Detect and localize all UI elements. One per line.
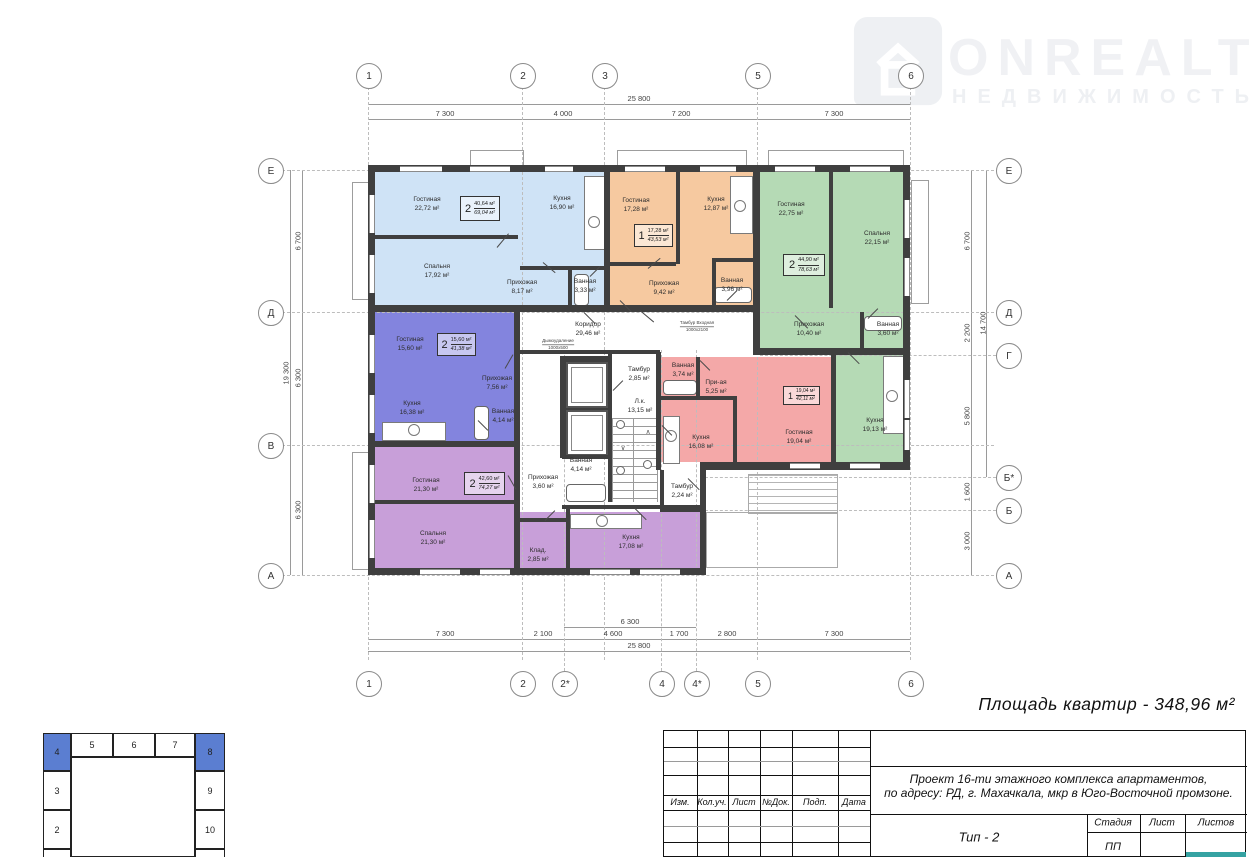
sink [596,515,608,527]
dim-right-seg3: 5 800 [963,407,972,426]
room-label: Ванная3,60 м² [877,321,899,339]
stair-post [643,460,652,469]
window [369,465,375,503]
axis-left-v: В [258,433,284,459]
dim-bottom-inner: 6 300 [621,617,640,626]
axis-right-bs: Б* [996,465,1022,491]
tb-line [728,731,729,857]
section-key-schema: 4 5 6 7 8 3 2 9 10 [43,733,222,857]
unit-label-orange: 117,28 м²43,53 м² [634,224,673,247]
dim-left-seg2: 6 300 [294,369,303,388]
axis-bottom-4: 4 [649,671,675,697]
dim-top-seg4: 7 300 [825,109,844,118]
window [420,569,460,575]
window [369,335,375,373]
room-label: Кухня16,08 м² [689,434,714,452]
tb-line [870,814,1247,815]
room-label: Ванная4,14 м² [492,408,514,426]
tb-line [1087,832,1247,833]
room-label: Кухня17,08 м² [619,534,644,552]
dim-right-seg2: 2 200 [963,324,972,343]
window [790,463,820,469]
axis-right-d: Д [996,300,1022,326]
apartment-blue-area [375,172,607,308]
stair-arrow-down: ∨ [620,444,625,452]
room-label: Спальня17,92 м² [424,263,450,281]
unit-label-periwinkle: 215,60 м²41,38 м² [437,333,476,356]
dim-line [564,627,696,628]
project-line2: по адресу: РД, г. Махачкала, мкр в Юго-В… [872,787,1245,801]
elevator-car [566,362,608,408]
schema-cell-9: 9 [195,771,225,810]
entrance-porch [706,512,838,568]
tb-line [792,731,793,857]
axis-line [700,510,996,511]
room-label: Ванная3,33 м² [574,278,596,296]
room-label: Прихожая8,17 м² [507,279,537,297]
schema-cell-5: 5 [71,733,113,757]
wall [566,508,570,568]
sink [886,390,898,402]
window [480,569,510,575]
balcony-rail [911,180,929,304]
wall [757,348,903,355]
dim-top-seg2: 4 000 [554,109,573,118]
apartments-total-area: Площадь квартир - 348,96 м² [700,694,1235,715]
bathtub [566,484,606,502]
room-label: Клад.2,85 м² [527,547,548,565]
wall [375,441,516,447]
window [904,200,910,238]
tb-line [838,731,839,857]
dim-line [368,119,910,120]
project-line1: Проект 16-ти этажного комплекса апартаме… [872,773,1245,787]
tb-line [870,731,871,857]
room-label: Спальня22,15 м² [864,230,890,248]
tb-line [697,731,698,857]
dim-top-seg1: 7 300 [436,109,455,118]
room-label: Прихожая7,56 м² [482,375,512,393]
axis-left-d: Д [258,300,284,326]
window [369,395,375,433]
wall [604,172,610,308]
room-label: Прихожая3,60 м² [528,474,558,492]
window [369,520,375,558]
room-label: Гостиная15,60 м² [396,336,423,354]
wall [375,305,757,312]
room-label: Гостиная19,04 м² [785,429,812,447]
tb-col-podp: Подп. [803,797,827,807]
dim-left-seg3: 6 300 [294,501,303,520]
wall [375,235,518,239]
window [904,420,910,450]
dim-left-seg1: 6 700 [294,232,303,251]
room-label: При-ая5,25 м² [705,379,726,397]
dim-bottom-seg6: 7 300 [825,629,844,638]
tb-line [1185,814,1186,857]
room-label: Ванная3,96 м² [721,277,743,295]
bathtub [663,380,697,395]
room-label: Тамбур2,85 м² [628,366,650,384]
room-label: Гостиная22,75 м² [777,201,804,219]
window [904,258,910,296]
house-bubble-icon [852,14,944,112]
wall [700,470,706,575]
axis-top-2: 2 [510,63,536,89]
dim-left-total: 19 300 [282,362,291,385]
logo-subtitle: НЕДВИЖИМОСТЬ [952,86,1249,109]
dim-bottom-seg4: 1 700 [670,629,689,638]
tb-listov-col: Листов [1198,818,1234,829]
tb-stage-col: Стадия [1094,818,1131,829]
dim-bottom-seg3: 4 600 [604,629,623,638]
tb-line [664,747,870,748]
schema-cell-7: 7 [155,733,195,757]
wall [375,500,516,504]
axis-line [700,477,996,478]
axis-line [760,355,996,356]
axis-bottom-2: 2 [510,671,536,697]
wall [520,518,566,522]
window [400,166,442,172]
wall [660,470,664,512]
dim-top-total: 25 800 [628,94,651,103]
window [904,380,910,418]
stage-value: ПП [1105,841,1121,853]
axis-right-e: Е [996,158,1022,184]
axis-top-3: 3 [592,63,618,89]
unit-label-blue: 240,64 м²69,04 м² [460,196,500,221]
logo-title: ONREALT [948,28,1249,88]
title-block: Изм. Кол.уч. Лист №Док. Подп. Дата Проек… [663,730,1246,857]
unit-label-green: 244,90 м²78,63 м² [783,254,825,276]
room-label: Гостиная17,28 м² [622,197,649,215]
onrealt-logo [852,14,944,117]
dim-line [368,651,910,652]
wall [696,357,700,397]
dim-right-seg4: 1 600 [963,483,972,502]
wall [733,396,737,462]
room-label: Гостиная21,30 м² [412,477,439,495]
stair-arrow-up: ∧ [645,428,650,436]
window [625,166,665,172]
room-label: Кухня16,90 м² [550,195,575,213]
dim-right-total: 14 700 [979,312,988,335]
stair-post [616,466,625,475]
smoke-vent-note: Дымоудаление1000х500 [542,338,574,352]
wall [712,258,753,262]
project-description: Проект 16-ти этажного комплекса апартаме… [872,773,1245,801]
tb-line [870,766,1247,767]
staircase [612,418,658,502]
floorplan-sheet: { "logo": {"title": "ONREALT", "subtitle… [0,0,1249,857]
axis-left-a: А [258,563,284,589]
window [470,166,510,172]
kitchen-counter [584,176,605,250]
window [850,463,880,469]
wall [610,262,676,266]
wall [520,350,660,354]
schema-cell-3: 3 [43,771,71,810]
sink [734,200,746,212]
entrance-steps [748,474,838,514]
teal-cell [1186,852,1246,857]
schema-cell-partial [195,849,225,857]
sink [588,216,600,228]
window [775,166,815,172]
tb-line [664,842,870,843]
window [369,255,375,293]
schema-cell-partial [43,849,71,857]
axis-top-1: 1 [356,63,382,89]
door-swing [613,380,624,391]
wall [656,352,661,470]
dim-right-seg1: 6 700 [963,232,972,251]
axis-line [282,575,994,576]
axis-bottom-1: 1 [356,671,382,697]
stair-divider [633,418,634,502]
axis-bottom-4s: 4* [684,671,710,697]
room-label: Ванная4,14 м² [570,457,592,475]
axis-bottom-2s: 2* [552,671,578,697]
wall [660,508,705,512]
dim-right-seg5: 3 000 [963,532,972,551]
window [700,166,736,172]
tb-line [1140,814,1141,857]
sink [408,424,420,436]
axis-left-e: Е [258,158,284,184]
tb-line [760,731,761,857]
wall [860,312,864,350]
tb-col-list: Лист [732,797,755,807]
room-label: Коридор29,46 м² [575,321,601,339]
room-label: Л.к.13,15 м² [628,398,653,416]
tb-line [664,810,870,811]
axis-right-b: Б [996,498,1022,524]
wall [676,172,680,264]
axis-bottom-5: 5 [745,671,771,697]
apartment-violet-area [375,447,514,568]
dim-top-seg3: 7 200 [672,109,691,118]
tb-col-koluch: Кол.уч. [697,797,726,807]
sheet-type: Тип - 2 [959,830,1000,845]
schema-cell-2: 2 [43,810,71,849]
axis-bottom-6: 6 [898,671,924,697]
dim-bottom-seg1: 7 300 [436,629,455,638]
schema-courtyard [71,757,195,857]
axis-right-g: Г [996,343,1022,369]
entry-tambour-note: Тамбур Входная1000х2100 [680,320,714,334]
axis-top-6: 6 [898,63,924,89]
wall [608,352,612,502]
tb-col-ndok: №Док. [762,797,790,807]
schema-cell-10: 10 [195,810,225,849]
room-label: Прихожая10,40 м² [794,321,824,339]
room-label: Кухня19,13 м² [863,417,888,435]
room-label: Ванная3,74 м² [672,362,694,380]
room-label: Гостиная22,72 м² [413,196,440,214]
tb-line [664,795,870,796]
dim-line [368,639,910,640]
window [545,166,573,172]
dim-bottom-seg2: 2 100 [534,629,553,638]
tb-line [1087,814,1088,857]
elevator-car [566,410,608,456]
unit-label-violet: 242,60 м²74,27 м² [464,472,505,495]
window [850,166,890,172]
unit-label-pink: 119,04 м²42,11 м² [783,386,820,405]
schema-cell-6: 6 [113,733,155,757]
tb-col-izm: Изм. [670,797,689,807]
dim-bottom-total: 25 800 [628,641,651,650]
tb-line [664,826,870,827]
room-label: Прихожая9,42 м² [649,280,679,298]
tb-col-data: Дата [842,797,866,807]
axis-right-a: А [996,563,1022,589]
dim-line [368,104,910,105]
axis-line [282,312,994,313]
window [590,569,630,575]
room-label: Кухня12,87 м² [704,196,729,214]
window [369,195,375,233]
wall [831,352,836,462]
room-label: Спальня21,30 м² [420,530,446,548]
schema-cell-8: 8 [195,733,225,771]
wall [753,172,760,355]
room-label: Тамбур2,24 м² [671,483,693,501]
tb-list-col: Лист [1149,818,1175,829]
window [640,569,680,575]
tb-line [664,761,870,762]
wall [712,258,716,308]
room-label: Кухня16,38 м² [400,400,425,418]
axis-top-5: 5 [745,63,771,89]
wall [520,266,606,270]
tb-line [664,775,870,776]
wall [568,270,572,308]
stair-post [616,420,625,429]
schema-cell-4: 4 [43,733,71,771]
dim-bottom-seg5: 2 800 [718,629,737,638]
wall [829,172,833,308]
